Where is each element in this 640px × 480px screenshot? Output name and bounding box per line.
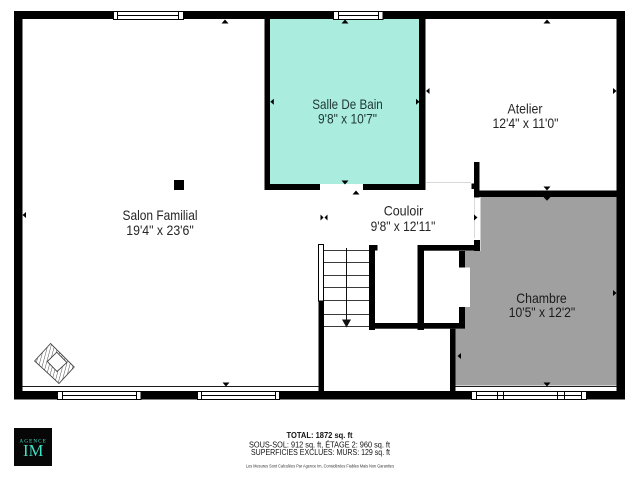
svg-text:10'5" x 12'2": 10'5" x 12'2"	[509, 304, 575, 320]
svg-text:12'4" x 11'0": 12'4" x 11'0"	[493, 115, 559, 131]
svg-text:IM: IM	[23, 441, 44, 460]
svg-text:Couloir: Couloir	[384, 203, 424, 219]
svg-text:Salon Familial: Salon Familial	[123, 207, 198, 223]
svg-text:9'8" x 10'7": 9'8" x 10'7"	[318, 111, 377, 127]
svg-text:19'4" x 23'6": 19'4" x 23'6"	[126, 222, 194, 238]
svg-text:SUPERFICIES EXCLUES: MURS: 129: SUPERFICIES EXCLUES: MURS: 129 sq. ft	[251, 447, 390, 457]
svg-text:9'8" x 12'11": 9'8" x 12'11"	[371, 218, 436, 234]
svg-text:Salle De Bain: Salle De Bain	[312, 96, 383, 112]
svg-text:Les Mesures Sont Calculées Par: Les Mesures Sont Calculées Par Agence Im…	[246, 464, 394, 469]
